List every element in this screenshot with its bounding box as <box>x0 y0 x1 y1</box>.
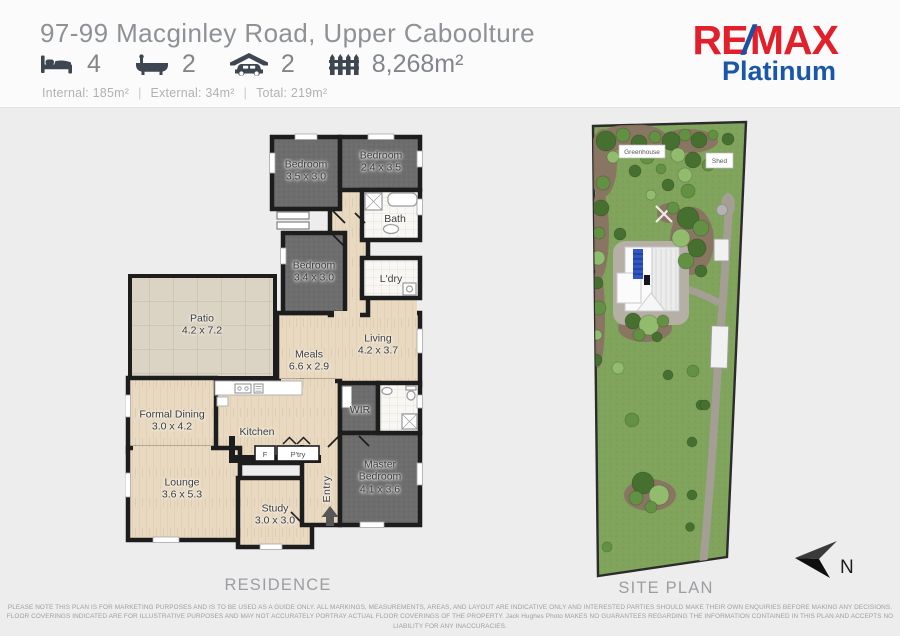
label-bath: Bath <box>384 213 406 225</box>
north-indicator: N <box>790 532 890 588</box>
baths-count: 2 <box>182 50 196 79</box>
label-study: Study3.0 x 3.0 <box>255 503 295 528</box>
land-icon <box>329 53 359 76</box>
label-lounge: Lounge3.6 x 5.3 <box>162 477 202 502</box>
label-bedroom-1: Bedroom3.5 x 3.0 <box>285 159 328 184</box>
label-formal-dining: Formal Dining3.0 x 4.2 <box>139 409 204 434</box>
residence-section-label: RESIDENCE <box>224 576 331 595</box>
cars-count: 2 <box>281 50 295 79</box>
total-area: Total: 219m² <box>256 86 327 100</box>
label-entry: Entry <box>321 475 333 502</box>
property-stats: 4 2 <box>40 50 497 79</box>
bed-icon <box>40 54 74 76</box>
fridge-label: F <box>263 450 268 459</box>
property-address-title: 97-99 Macginley Road, Upper Caboolture <box>40 18 535 49</box>
separator: | <box>235 86 256 100</box>
label-kitchen: Kitchen <box>239 426 274 438</box>
pantry-label: P'try <box>291 450 306 459</box>
bath-icon <box>135 54 169 76</box>
label-laundry: L'dry <box>380 273 402 285</box>
stat-beds: 4 <box>40 50 101 79</box>
land-size: 8,268m² <box>372 50 464 79</box>
internal-area: Internal: 185m² <box>42 86 129 100</box>
site-plan-drawing: Greenhouse Shed <box>573 113 763 583</box>
stat-cars: 2 <box>230 50 295 79</box>
disclaimer-line-2: FLOOR COVERINGS INDICATED ARE FOR ILLUST… <box>0 612 900 631</box>
header: 97-99 Macginley Road, Upper Caboolture 4 <box>0 0 900 108</box>
floor-plan: F P'try Bedroom3.5 x 3.0 Bedroom2.4 x 3.… <box>125 133 425 567</box>
label-bedroom-2: Bedroom2.4 x 3.5 <box>360 150 403 175</box>
siteplan-section-label: SITE PLAN <box>618 579 713 598</box>
stat-baths: 2 <box>135 50 196 79</box>
north-arrow-icon: N <box>790 532 890 588</box>
house <box>613 241 689 325</box>
label-living: Living4.2 x 3.7 <box>358 333 398 358</box>
north-label: N <box>840 557 854 578</box>
water-tank <box>717 205 728 216</box>
separator: | <box>129 86 150 100</box>
beds-count: 4 <box>87 50 101 79</box>
disclaimer: PLEASE NOTE THIS PLAN IS FOR MARKETING P… <box>0 603 900 631</box>
area-summary: Internal: 185m²|External: 34m²|Total: 21… <box>42 86 327 100</box>
label-meals: Meals6.6 x 2.9 <box>289 349 329 374</box>
label-master-bedroom: Master Bedroom4.1 x 3.6 <box>349 458 411 495</box>
site-plan: Greenhouse Shed <box>573 113 763 583</box>
stat-land: 8,268m² <box>329 50 464 79</box>
remax-wordmark: RE/MAX <box>693 20 838 61</box>
label-patio: Patio4.2 x 7.2 <box>182 313 222 338</box>
shed-label: Shed <box>712 158 728 165</box>
label-bedroom-3: Bedroom3.4 x 3.0 <box>293 260 336 285</box>
page: { "header": { "title": "97-99 Macginley … <box>0 0 900 636</box>
disclaimer-line-1: PLEASE NOTE THIS PLAN IS FOR MARKETING P… <box>0 603 900 612</box>
remax-platinum-logo: RE/MAX Platinum <box>693 20 838 85</box>
external-area: External: 34m² <box>151 86 235 100</box>
garage-icon <box>230 53 268 77</box>
greenhouse-label: Greenhouse <box>624 149 660 156</box>
label-wir: WIR <box>350 404 370 416</box>
